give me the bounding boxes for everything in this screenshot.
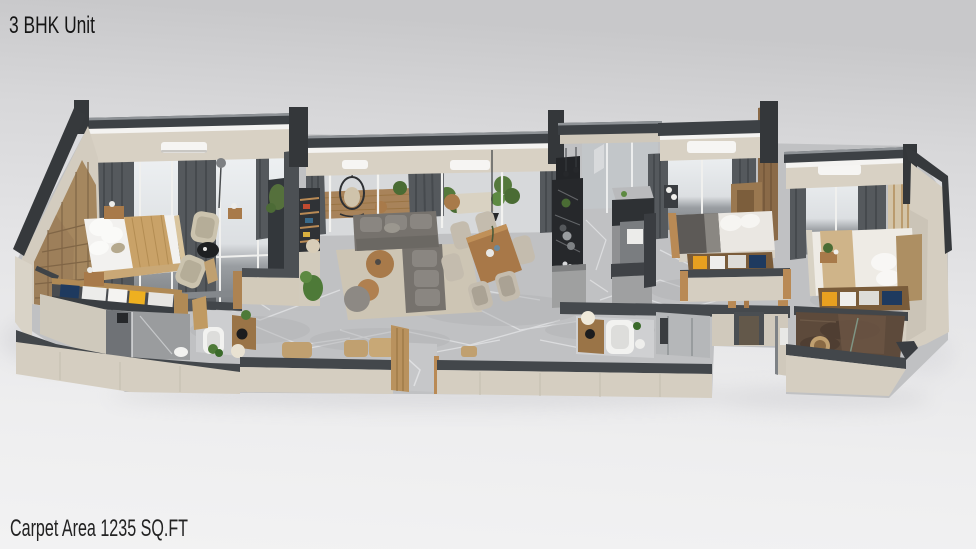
svg-text:Carpet Area 1235 SQ.FT: Carpet Area 1235 SQ.FT (10, 515, 188, 542)
svg-text:3 BHK Unit: 3 BHK Unit (9, 12, 95, 39)
